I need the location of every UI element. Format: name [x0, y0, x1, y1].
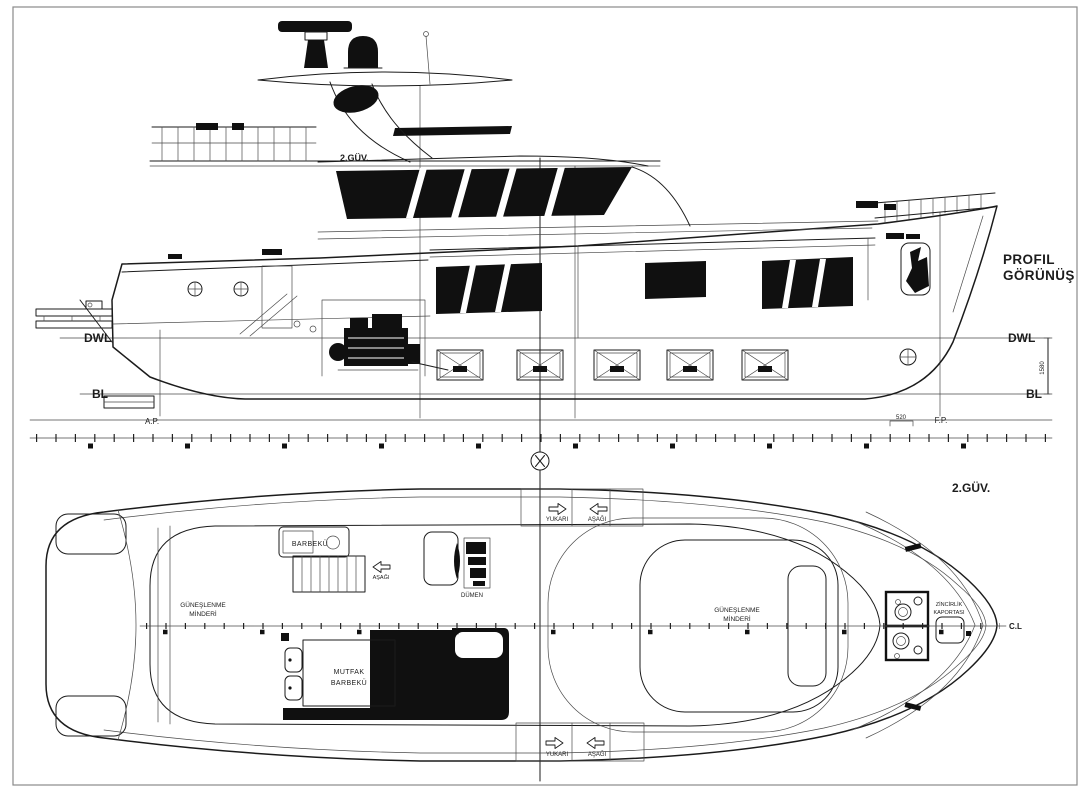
helm-station: DÜMEN: [424, 532, 490, 599]
arrow-up-icon: [546, 738, 563, 749]
dim-1580: 1580: [1040, 361, 1046, 375]
radar-mast: [258, 21, 512, 162]
barbecue-unit: BARBEKÜ: [279, 527, 349, 557]
main-deckhouse: [318, 221, 920, 338]
radar-antenna: [278, 21, 352, 32]
cleat: [905, 543, 922, 552]
sunpad-aft-label-line2: MİNDERİ: [189, 609, 217, 618]
galley-label-line1: MUTFAK: [334, 669, 365, 676]
steering-wheel: [454, 543, 460, 579]
arrow-down-icon: [590, 504, 607, 515]
hull-profile: [104, 206, 997, 408]
profile-deck2-label: 2.GÜV.: [340, 153, 369, 163]
yacht-general-arrangement: PROFIL GÖRÜNÜŞ 2.GÜV. DWL DWL BL BL A.P.…: [0, 0, 1088, 794]
bl-label-right: BL: [1026, 387, 1042, 401]
hatch-top-down-label: AŞAĞI: [588, 516, 607, 523]
ladder-down-label: AŞAĞI: [373, 574, 390, 581]
plan-deck2-label: 2.GÜV.: [952, 480, 990, 495]
sheet-border: [13, 7, 1077, 785]
ladder: AŞAĞI: [293, 556, 390, 592]
plan-view: YUKARI AŞAĞI YUKARI AŞAĞI BARBEKÜ AŞAĞI: [46, 480, 1022, 761]
profile-title-line2: GÖRÜNÜŞ: [1003, 268, 1075, 283]
hatch-bottom: YUKARI AŞAĞI: [516, 723, 644, 761]
hatch-top: YUKARI AŞAĞI: [521, 489, 643, 526]
arrow-down-icon: [587, 738, 604, 749]
sunpad-aft: [158, 526, 170, 724]
fp-label: F.P.: [935, 416, 948, 425]
ap-label: A.P.: [145, 417, 159, 426]
anchor: [901, 243, 930, 295]
satellite-dome: [348, 36, 378, 68]
technical-drawing-page: PROFIL GÖRÜNÜŞ 2.GÜV. DWL DWL BL BL A.P.…: [0, 0, 1088, 794]
bow-fittings: [886, 543, 928, 711]
dwl-label-left: DWL: [84, 331, 111, 345]
hatch-bottom-up-label: YUKARI: [546, 752, 569, 758]
centerline-label: C.L: [1009, 622, 1022, 631]
barbecue-label: BARBEKÜ: [292, 540, 328, 548]
sunpad-fwd-label-line2: MİNDERİ: [723, 614, 751, 623]
helm-label: DÜMEN: [461, 592, 483, 599]
hatch-bottom-down-label: AŞAĞI: [588, 751, 607, 758]
profile-title-line1: PROFIL: [1003, 252, 1055, 267]
profile-view: PROFIL GÖRÜNÜŞ 2.GÜV. DWL DWL BL BL A.P.…: [30, 21, 1075, 781]
tank-row: [437, 349, 916, 380]
stern-platform: [56, 510, 136, 740]
chain-locker-label-line2: KAPORTASI: [934, 610, 965, 616]
chain-locker: ZİNCİRLİK KAPORTASI: [934, 601, 971, 643]
foredeck-railing: [856, 193, 995, 223]
arrow-down-icon: [373, 562, 390, 573]
sunpad-aft-label-line1: GÜNEŞLENME: [180, 601, 226, 609]
arrow-up-icon: [549, 504, 566, 515]
dim-520: 520: [896, 415, 907, 421]
hatch-top-up-label: YUKARI: [546, 517, 569, 523]
dwl-label-right: DWL: [1008, 331, 1035, 345]
sunpad-fwd-label-line1: GÜNEŞLENME: [714, 606, 760, 614]
chain-locker-label-line1: ZİNCİRLİK: [936, 601, 963, 608]
bl-label-left: BL: [92, 387, 108, 401]
galley-label-line2: BARBEKÜ: [331, 679, 367, 687]
